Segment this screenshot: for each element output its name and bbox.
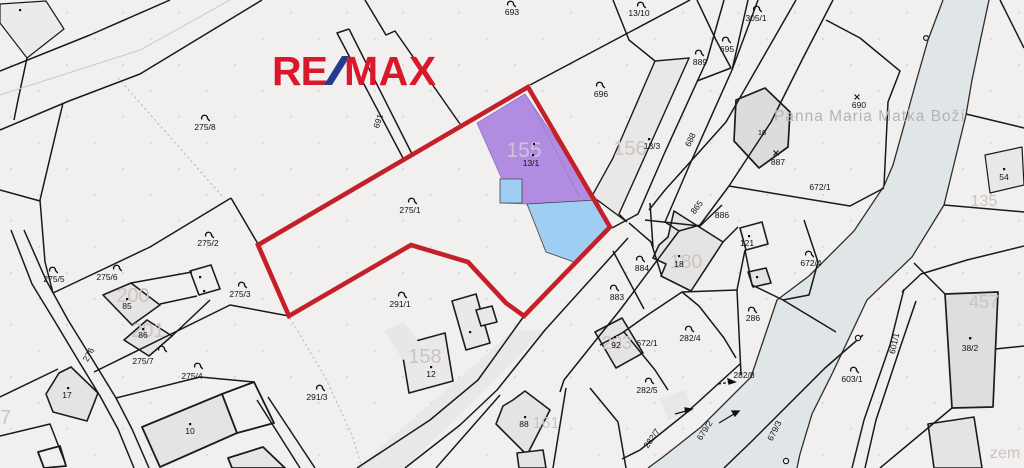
svg-text:17: 17 bbox=[62, 390, 72, 400]
svg-text:275/3: 275/3 bbox=[229, 289, 251, 299]
svg-text:282/4: 282/4 bbox=[679, 333, 701, 343]
svg-text:156: 156 bbox=[613, 138, 646, 160]
svg-text:672/1: 672/1 bbox=[636, 338, 658, 348]
svg-text:282/8: 282/8 bbox=[733, 370, 755, 380]
svg-text:291/3: 291/3 bbox=[306, 392, 328, 402]
svg-text:85: 85 bbox=[122, 301, 132, 311]
svg-text:zem: zem bbox=[990, 445, 1020, 462]
svg-text:457: 457 bbox=[969, 292, 999, 312]
svg-text:16: 16 bbox=[758, 128, 766, 137]
svg-text:13/1: 13/1 bbox=[523, 158, 540, 168]
svg-text:884: 884 bbox=[635, 263, 649, 273]
svg-text:887: 887 bbox=[771, 157, 785, 167]
svg-text:Panna Maria Matka Boží: Panna Maria Matka Boží bbox=[774, 108, 966, 125]
svg-text:13/10: 13/10 bbox=[628, 8, 650, 18]
svg-text:121: 121 bbox=[740, 238, 754, 248]
svg-text:286: 286 bbox=[746, 313, 760, 323]
svg-text:275/6: 275/6 bbox=[96, 272, 118, 282]
svg-text:13/3: 13/3 bbox=[644, 141, 661, 151]
svg-text:201: 201 bbox=[131, 320, 164, 342]
svg-text:86: 86 bbox=[138, 330, 148, 340]
svg-text:54: 54 bbox=[999, 172, 1009, 182]
svg-text:158: 158 bbox=[408, 346, 441, 368]
svg-text:693: 693 bbox=[505, 7, 519, 17]
svg-text:MAX: MAX bbox=[344, 48, 437, 94]
svg-text:690: 690 bbox=[852, 100, 866, 110]
svg-text:695: 695 bbox=[720, 44, 734, 54]
svg-text:161: 161 bbox=[533, 415, 560, 432]
svg-text:696: 696 bbox=[594, 89, 608, 99]
svg-text:291/1: 291/1 bbox=[389, 299, 411, 309]
svg-text:603/1: 603/1 bbox=[841, 374, 863, 384]
svg-text:889: 889 bbox=[693, 57, 707, 67]
svg-text:RE: RE bbox=[272, 48, 327, 94]
svg-text:282/5: 282/5 bbox=[636, 385, 658, 395]
svg-text:672/1: 672/1 bbox=[809, 182, 831, 192]
svg-text:38/2: 38/2 bbox=[962, 343, 979, 353]
svg-text:305/1: 305/1 bbox=[745, 13, 767, 23]
svg-text:883: 883 bbox=[610, 292, 624, 302]
svg-text:275/1: 275/1 bbox=[399, 205, 421, 215]
svg-text:7: 7 bbox=[0, 407, 11, 429]
svg-text:275/5: 275/5 bbox=[43, 274, 65, 284]
svg-text:135: 135 bbox=[971, 193, 998, 210]
svg-text:18: 18 bbox=[674, 259, 684, 269]
svg-text:275/4: 275/4 bbox=[181, 371, 203, 381]
svg-text:275/2: 275/2 bbox=[197, 238, 219, 248]
svg-text:92: 92 bbox=[611, 340, 621, 350]
svg-text:88: 88 bbox=[519, 419, 529, 429]
svg-text:275/7: 275/7 bbox=[132, 356, 154, 366]
svg-text:10: 10 bbox=[185, 426, 195, 436]
svg-text:672/4: 672/4 bbox=[800, 258, 822, 268]
svg-text:275/8: 275/8 bbox=[194, 122, 216, 132]
svg-text:12: 12 bbox=[426, 369, 436, 379]
svg-text:886: 886 bbox=[715, 210, 729, 220]
